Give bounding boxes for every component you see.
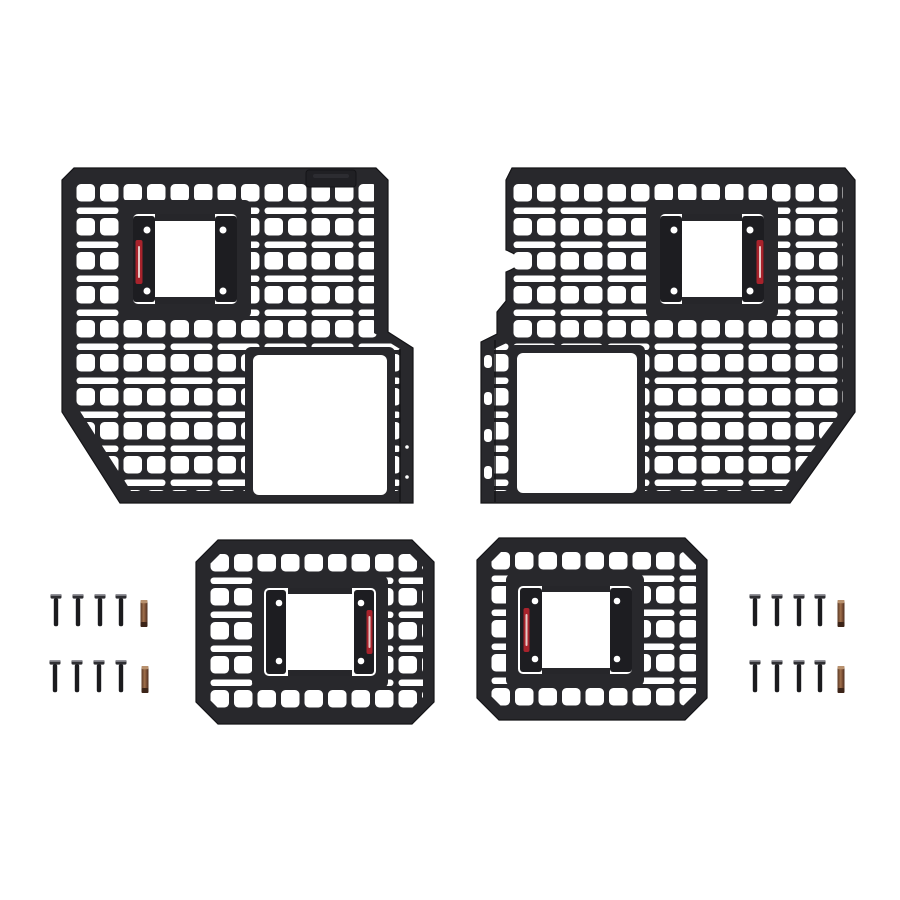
bolt-hole bbox=[532, 598, 539, 605]
small-panel-right bbox=[477, 538, 707, 721]
hex-bolt bbox=[51, 594, 62, 626]
hardware-set-left bbox=[50, 594, 149, 693]
mounting-bracket bbox=[646, 200, 778, 318]
hardware-row-2 bbox=[50, 660, 149, 693]
hardware-row-2 bbox=[750, 660, 845, 693]
hex-bolt bbox=[116, 660, 127, 692]
flange-slot bbox=[484, 429, 492, 442]
mounting-bracket bbox=[506, 574, 644, 686]
hex-bolt bbox=[815, 660, 826, 692]
small-panel-left bbox=[196, 540, 434, 725]
bolt-hole bbox=[532, 656, 539, 663]
bolt-hole bbox=[358, 658, 365, 665]
torx-bit bbox=[838, 666, 845, 693]
hex-bolt bbox=[750, 594, 761, 626]
bracket-flange-right bbox=[610, 588, 632, 672]
hex-bolt bbox=[772, 594, 783, 626]
tab-etch bbox=[313, 174, 349, 178]
hex-bolt bbox=[815, 594, 826, 626]
bracket-lip-bottom bbox=[155, 297, 215, 304]
bracket-lip-bottom bbox=[288, 670, 352, 676]
bolt-hole bbox=[614, 598, 621, 605]
large-panel-right bbox=[481, 168, 861, 508]
top-mounting-tab bbox=[306, 170, 356, 187]
hardware-set-right bbox=[750, 594, 845, 693]
hex-bolt bbox=[794, 594, 805, 626]
mounting-bracket bbox=[252, 576, 388, 688]
torx-bit bbox=[838, 600, 845, 627]
mounting-bracket bbox=[119, 200, 251, 318]
brand-label-text-mark bbox=[369, 616, 371, 648]
flange-slot bbox=[484, 355, 492, 368]
product-photo-canvas bbox=[0, 0, 900, 900]
hardware-row-1 bbox=[51, 594, 148, 627]
flange-hole bbox=[405, 475, 409, 479]
bolt-hole bbox=[144, 227, 151, 234]
hex-bolt bbox=[94, 660, 105, 692]
bolt-hole bbox=[220, 227, 227, 234]
bolt-hole bbox=[276, 658, 283, 665]
flange-slot bbox=[484, 466, 492, 479]
bolt-hole bbox=[747, 288, 754, 295]
large-access-cutout bbox=[253, 355, 387, 495]
hex-bolt bbox=[116, 594, 127, 626]
torx-bit bbox=[141, 600, 148, 627]
bracket-lip-top bbox=[288, 588, 352, 594]
bracket-flange-left bbox=[520, 588, 542, 672]
hex-bolt bbox=[772, 660, 783, 692]
molle-panel-kit-photo bbox=[0, 0, 900, 900]
large-panel-left bbox=[62, 168, 417, 508]
bolt-hole bbox=[276, 600, 283, 607]
bracket-lip-top bbox=[155, 214, 215, 221]
hex-bolt bbox=[72, 660, 83, 692]
bolt-hole bbox=[747, 227, 754, 234]
brand-label-text-mark bbox=[526, 614, 528, 646]
hardware-row-1 bbox=[750, 594, 845, 627]
flange-hole bbox=[405, 445, 409, 449]
brand-label-text-mark bbox=[759, 246, 761, 278]
hex-bolt bbox=[95, 594, 106, 626]
bolt-hole bbox=[671, 288, 678, 295]
torx-bit bbox=[142, 666, 149, 693]
flange-slot bbox=[484, 392, 492, 405]
bolt-hole bbox=[220, 288, 227, 295]
bolt-hole bbox=[358, 600, 365, 607]
large-access-cutout bbox=[517, 353, 637, 493]
bracket-lip-top bbox=[682, 214, 742, 221]
bolt-hole bbox=[671, 227, 678, 234]
bolt-hole bbox=[614, 656, 621, 663]
bolt-hole bbox=[144, 288, 151, 295]
hex-bolt bbox=[50, 660, 61, 692]
brand-label-text-mark bbox=[138, 246, 140, 278]
bracket-lip-bottom bbox=[682, 297, 742, 304]
hex-bolt bbox=[73, 594, 84, 626]
hex-bolt bbox=[750, 660, 761, 692]
bracket-lip-top bbox=[542, 586, 610, 592]
bracket-lip-bottom bbox=[542, 668, 610, 674]
hex-bolt bbox=[794, 660, 805, 692]
